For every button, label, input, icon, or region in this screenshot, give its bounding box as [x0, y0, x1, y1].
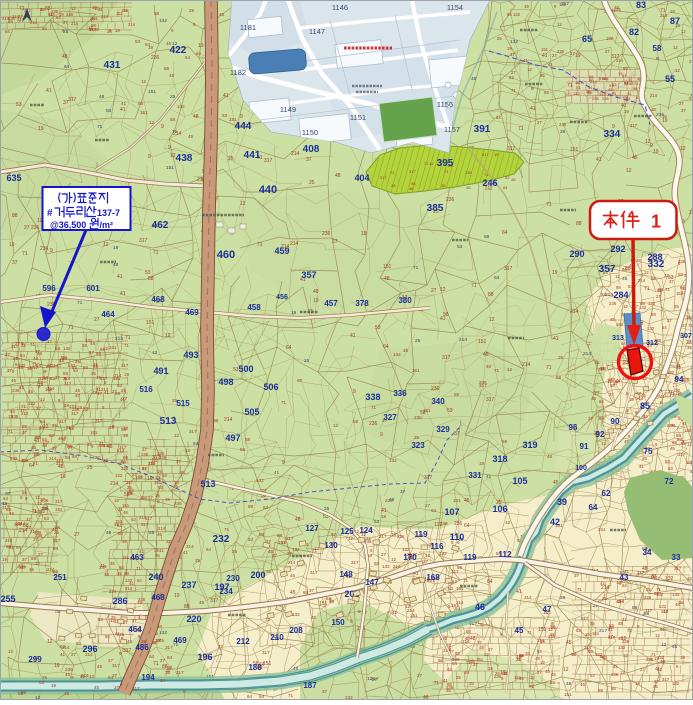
svg-text:53: 53: [509, 75, 514, 80]
svg-text:431: 431: [104, 60, 121, 71]
svg-text:58: 58: [438, 658, 443, 663]
svg-text:19: 19: [51, 683, 57, 688]
svg-text:513: 513: [160, 416, 177, 427]
svg-text:48: 48: [115, 391, 120, 396]
svg-text:48: 48: [107, 444, 113, 450]
svg-text:27: 27: [640, 667, 645, 672]
svg-text:27: 27: [552, 53, 557, 58]
svg-text:151: 151: [109, 345, 117, 350]
svg-text:88: 88: [598, 688, 604, 693]
svg-text:317: 317: [451, 569, 459, 574]
svg-text:132: 132: [513, 12, 521, 17]
svg-text:48: 48: [384, 276, 390, 282]
svg-text:25: 25: [22, 424, 27, 429]
svg-text:45: 45: [59, 358, 64, 363]
svg-text:19: 19: [621, 636, 627, 642]
svg-text:151: 151: [410, 613, 418, 618]
svg-text:317: 317: [479, 383, 487, 388]
svg-text:41: 41: [530, 106, 536, 112]
svg-text:25: 25: [117, 571, 122, 576]
svg-text:151: 151: [122, 555, 130, 560]
svg-text:41: 41: [120, 291, 126, 297]
svg-text:45: 45: [159, 638, 165, 643]
svg-text:1156: 1156: [437, 100, 453, 109]
svg-text:187: 187: [303, 681, 317, 690]
svg-text:48: 48: [64, 691, 70, 696]
svg-text:41: 41: [117, 274, 123, 280]
svg-text:357: 357: [599, 264, 616, 275]
svg-text:12: 12: [35, 495, 40, 500]
svg-text:37: 37: [510, 52, 515, 57]
svg-text:45: 45: [110, 561, 115, 566]
svg-text:53: 53: [374, 519, 380, 525]
svg-text:64: 64: [9, 545, 14, 550]
svg-text:515: 515: [176, 399, 190, 408]
svg-text:27: 27: [89, 350, 94, 355]
svg-text:214: 214: [21, 411, 29, 416]
svg-text:71: 71: [136, 566, 141, 571]
svg-text:64: 64: [142, 466, 147, 471]
svg-text:71: 71: [413, 265, 419, 271]
svg-text:45: 45: [580, 682, 586, 687]
svg-text:37: 37: [55, 375, 60, 380]
svg-text:100: 100: [575, 465, 587, 472]
svg-text:37: 37: [454, 431, 460, 437]
svg-text:422: 422: [170, 45, 187, 56]
svg-text:72: 72: [665, 477, 674, 486]
svg-text:48: 48: [409, 186, 414, 191]
svg-text:45: 45: [515, 626, 524, 635]
svg-text:378: 378: [355, 299, 369, 308]
svg-text:58: 58: [353, 419, 359, 424]
svg-text:48: 48: [9, 511, 14, 516]
svg-text:214: 214: [462, 639, 470, 644]
svg-text:9: 9: [120, 682, 123, 687]
svg-text:48: 48: [62, 54, 68, 60]
svg-text:317: 317: [611, 54, 620, 60]
svg-text:88: 88: [45, 6, 51, 12]
svg-text:214: 214: [583, 351, 591, 357]
svg-text:19: 19: [361, 231, 367, 237]
svg-text:132: 132: [647, 326, 655, 331]
svg-text:71: 71: [371, 405, 377, 410]
svg-text:53: 53: [76, 641, 82, 646]
svg-text:27: 27: [24, 225, 30, 231]
svg-text:27: 27: [537, 670, 542, 675]
svg-text:71: 71: [627, 628, 632, 633]
svg-text:53: 53: [576, 628, 581, 633]
svg-text:292: 292: [610, 244, 625, 254]
svg-text:214: 214: [459, 337, 467, 343]
svg-text:317: 317: [95, 418, 103, 423]
svg-text:27: 27: [682, 323, 687, 328]
svg-text:12: 12: [333, 423, 339, 428]
svg-text:132: 132: [256, 478, 264, 483]
svg-text:88: 88: [34, 452, 40, 458]
svg-text:214: 214: [224, 417, 233, 423]
svg-text:132: 132: [63, 346, 71, 351]
svg-text:317: 317: [176, 670, 184, 675]
svg-text:317: 317: [630, 123, 638, 128]
svg-text:19: 19: [198, 43, 204, 49]
svg-text:71: 71: [494, 368, 500, 373]
svg-text:12: 12: [8, 649, 14, 654]
svg-text:37: 37: [218, 644, 224, 649]
svg-text:25: 25: [121, 388, 126, 393]
svg-text:64: 64: [108, 675, 114, 680]
svg-text:1154: 1154: [447, 3, 463, 12]
svg-text:19: 19: [519, 676, 524, 681]
svg-text:317: 317: [379, 534, 387, 539]
svg-text:42: 42: [550, 517, 560, 527]
svg-text:41: 41: [553, 336, 559, 342]
svg-text:37: 37: [550, 624, 555, 629]
svg-text:64: 64: [196, 51, 202, 56]
svg-text:48: 48: [663, 609, 669, 614]
svg-text:48: 48: [642, 456, 647, 461]
svg-text:9: 9: [50, 248, 53, 254]
svg-text:27: 27: [622, 73, 627, 78]
svg-text:137-7: 137-7: [97, 208, 120, 218]
svg-text:19: 19: [115, 28, 120, 33]
svg-text:236: 236: [12, 388, 20, 393]
svg-text:71: 71: [68, 325, 74, 331]
svg-text:214: 214: [5, 538, 13, 543]
svg-text:64: 64: [73, 368, 78, 373]
svg-text:48: 48: [466, 185, 471, 190]
svg-text:25: 25: [441, 183, 446, 188]
svg-text:19: 19: [618, 71, 623, 76]
svg-text:53: 53: [448, 586, 454, 591]
svg-text:53: 53: [222, 113, 228, 118]
svg-text:236: 236: [609, 301, 617, 306]
svg-text:25: 25: [127, 485, 132, 490]
svg-text:45: 45: [311, 615, 317, 620]
svg-text:58: 58: [651, 276, 656, 281]
svg-text:25: 25: [497, 36, 502, 41]
svg-text:12: 12: [114, 522, 119, 527]
svg-text:41: 41: [660, 394, 665, 399]
svg-text:19: 19: [662, 118, 668, 124]
svg-text:58: 58: [653, 44, 662, 53]
svg-text:71: 71: [598, 367, 603, 372]
svg-text:357: 357: [301, 270, 316, 280]
svg-text:516: 516: [139, 385, 153, 394]
svg-text:151: 151: [91, 16, 99, 21]
svg-text:214: 214: [638, 278, 646, 283]
svg-text:236: 236: [646, 657, 654, 662]
svg-text:214: 214: [522, 362, 531, 368]
svg-text:53: 53: [447, 408, 453, 414]
svg-text:37: 37: [35, 349, 40, 354]
svg-text:1182: 1182: [230, 68, 246, 77]
svg-text:48: 48: [566, 681, 572, 687]
svg-text:25: 25: [602, 596, 607, 601]
svg-text:317: 317: [141, 522, 149, 527]
svg-text:45: 45: [566, 640, 572, 646]
svg-text:408: 408: [303, 144, 320, 155]
svg-text:41: 41: [46, 88, 52, 94]
svg-text:27: 27: [5, 352, 10, 357]
svg-text:19: 19: [138, 474, 143, 479]
svg-text:37: 37: [132, 618, 137, 623]
svg-text:71: 71: [77, 300, 83, 306]
svg-text:214: 214: [71, 21, 79, 26]
svg-text:236: 236: [151, 55, 160, 61]
svg-text:27: 27: [686, 340, 692, 346]
svg-text:64: 64: [431, 508, 437, 513]
svg-text:105: 105: [512, 476, 527, 486]
svg-text:307: 307: [680, 333, 692, 340]
svg-text:37: 37: [309, 588, 315, 593]
svg-text:53: 53: [83, 365, 88, 370]
svg-text:45: 45: [137, 600, 142, 605]
svg-text:12: 12: [673, 45, 678, 50]
svg-text:37: 37: [26, 517, 31, 522]
svg-text:71: 71: [153, 250, 159, 256]
svg-text:12: 12: [620, 670, 625, 675]
svg-text:236: 236: [141, 452, 149, 457]
svg-text:71: 71: [463, 578, 469, 583]
svg-text:64: 64: [494, 275, 500, 281]
svg-text:53: 53: [665, 459, 670, 464]
svg-text:116: 116: [431, 542, 444, 551]
svg-text:71: 71: [153, 661, 159, 667]
svg-text:214: 214: [51, 363, 59, 368]
svg-text:45: 45: [687, 576, 692, 581]
svg-text:58: 58: [42, 26, 47, 31]
svg-text:12: 12: [687, 442, 692, 447]
svg-text:88: 88: [625, 266, 631, 272]
svg-text:214: 214: [81, 673, 89, 678]
svg-text:45: 45: [94, 685, 100, 690]
svg-text:58: 58: [138, 101, 144, 106]
svg-text:19: 19: [27, 366, 32, 371]
svg-text:1150: 1150: [302, 128, 318, 137]
svg-text:71: 71: [125, 335, 131, 341]
svg-text:317: 317: [11, 344, 19, 349]
svg-text:12: 12: [162, 473, 167, 478]
svg-text:12: 12: [185, 448, 191, 453]
svg-text:64: 64: [503, 185, 508, 190]
svg-text:37: 37: [63, 100, 69, 106]
svg-text:110: 110: [450, 532, 465, 542]
svg-text:47: 47: [543, 605, 552, 614]
svg-text:41: 41: [120, 107, 126, 113]
svg-text:19: 19: [391, 532, 397, 537]
svg-text:48: 48: [295, 517, 301, 523]
svg-text:37: 37: [488, 647, 493, 652]
svg-text:88: 88: [576, 221, 582, 227]
svg-text:53: 53: [505, 175, 510, 180]
svg-text:71: 71: [434, 680, 439, 685]
svg-text:9: 9: [531, 86, 534, 92]
svg-text:96: 96: [569, 423, 578, 432]
svg-text:64: 64: [43, 375, 48, 380]
svg-text:25: 25: [414, 435, 420, 440]
svg-text:71: 71: [30, 342, 35, 347]
svg-text:19: 19: [114, 498, 119, 503]
svg-text:214: 214: [291, 151, 300, 157]
svg-text:12: 12: [601, 441, 606, 446]
svg-text:88: 88: [12, 213, 18, 219]
svg-text:25: 25: [590, 621, 595, 626]
svg-text:25: 25: [456, 675, 461, 680]
svg-text:313: 313: [612, 335, 624, 342]
svg-text:25: 25: [155, 553, 160, 558]
svg-text:236: 236: [557, 49, 565, 54]
svg-text:71: 71: [22, 251, 28, 257]
svg-text:71: 71: [471, 283, 477, 289]
svg-text:151: 151: [319, 601, 328, 607]
svg-text:317: 317: [599, 628, 607, 634]
svg-text:25: 25: [75, 359, 80, 364]
svg-text:45: 45: [622, 276, 628, 282]
svg-text:317: 317: [53, 538, 61, 543]
svg-text:64: 64: [145, 42, 151, 47]
svg-text:41: 41: [542, 53, 548, 59]
svg-text:317: 317: [152, 455, 161, 461]
svg-text:27: 27: [656, 294, 661, 299]
svg-text:236: 236: [431, 386, 440, 392]
svg-text:9: 9: [380, 432, 383, 438]
svg-text:317: 317: [59, 419, 67, 424]
svg-text:340: 340: [431, 397, 445, 406]
svg-text:88: 88: [632, 605, 638, 611]
svg-text:1157: 1157: [444, 125, 460, 134]
svg-text:58: 58: [600, 654, 605, 659]
svg-text:64: 64: [105, 634, 110, 639]
svg-text:41: 41: [100, 563, 105, 568]
svg-text:601: 601: [86, 284, 100, 293]
svg-text:317: 317: [507, 146, 516, 152]
svg-text:236: 236: [667, 423, 675, 428]
svg-text:48: 48: [169, 73, 175, 78]
svg-text:12: 12: [626, 168, 632, 174]
svg-text:45: 45: [65, 672, 71, 677]
svg-text:19: 19: [680, 655, 685, 660]
svg-text:48: 48: [193, 114, 199, 120]
svg-text:19: 19: [479, 461, 485, 466]
svg-text:148: 148: [339, 570, 353, 579]
svg-text:132: 132: [177, 104, 185, 109]
svg-text:9: 9: [183, 689, 186, 694]
svg-text:25: 25: [309, 180, 315, 186]
svg-text:491: 491: [153, 366, 168, 376]
svg-text:132: 132: [159, 630, 167, 636]
svg-text:12: 12: [425, 553, 431, 558]
svg-text:27: 27: [511, 70, 516, 75]
svg-text:323: 323: [411, 441, 425, 450]
svg-text:53: 53: [544, 90, 549, 95]
svg-text:19: 19: [9, 242, 15, 248]
svg-text:37: 37: [331, 532, 337, 537]
svg-text:236: 236: [66, 12, 74, 17]
svg-text:317: 317: [119, 445, 127, 450]
svg-text:53: 53: [135, 39, 141, 44]
svg-text:19: 19: [59, 12, 64, 17]
svg-text:48: 48: [106, 530, 112, 536]
svg-text:64: 64: [507, 12, 512, 17]
svg-text:45: 45: [483, 352, 489, 358]
svg-text:317: 317: [189, 429, 197, 434]
svg-text:27: 27: [423, 559, 429, 564]
svg-text:214: 214: [290, 241, 299, 247]
svg-text:214: 214: [570, 309, 579, 315]
svg-text:151: 151: [140, 110, 148, 115]
svg-text:459: 459: [274, 246, 289, 256]
svg-text:236: 236: [454, 521, 463, 527]
svg-text:236: 236: [397, 534, 405, 539]
svg-text:132: 132: [686, 460, 693, 465]
svg-text:19: 19: [123, 433, 128, 438]
svg-text:112: 112: [499, 550, 512, 559]
svg-text:151: 151: [453, 498, 461, 503]
svg-text:41: 41: [223, 93, 229, 99]
svg-text:236: 236: [414, 415, 422, 420]
svg-text:214: 214: [125, 586, 133, 591]
svg-text:64: 64: [383, 344, 389, 350]
svg-text:25: 25: [82, 343, 87, 348]
svg-text:75: 75: [644, 447, 653, 456]
svg-text:9: 9: [148, 154, 151, 160]
svg-text:486: 486: [135, 643, 149, 652]
svg-text:48: 48: [104, 572, 109, 577]
svg-text:71: 71: [19, 6, 25, 12]
svg-text:132: 132: [606, 36, 614, 41]
svg-text:37: 37: [608, 634, 613, 639]
svg-text:19: 19: [123, 8, 128, 13]
svg-text:25: 25: [232, 549, 238, 554]
svg-text:385: 385: [427, 203, 444, 214]
svg-text:25: 25: [149, 530, 155, 536]
svg-text:214: 214: [393, 564, 401, 569]
svg-text:469: 469: [185, 308, 199, 317]
svg-text:1146: 1146: [332, 3, 348, 12]
svg-text:12: 12: [47, 639, 53, 645]
svg-text:58: 58: [374, 561, 380, 566]
svg-text:25: 25: [616, 7, 621, 12]
svg-text:12: 12: [40, 397, 45, 402]
svg-text:58: 58: [55, 346, 60, 351]
svg-text:246: 246: [482, 178, 497, 188]
svg-text:9: 9: [168, 145, 171, 151]
svg-text:64: 64: [662, 325, 667, 330]
svg-text:58: 58: [443, 312, 449, 318]
svg-text:286: 286: [112, 596, 127, 606]
svg-text:41: 41: [655, 666, 660, 671]
svg-text:19: 19: [124, 372, 129, 377]
svg-text:493: 493: [183, 350, 198, 360]
svg-text:9: 9: [157, 499, 160, 504]
svg-text:317: 317: [504, 266, 513, 272]
svg-text:9: 9: [282, 460, 285, 466]
svg-text:132: 132: [618, 645, 626, 650]
svg-text:317: 317: [561, 1, 569, 7]
svg-text:456: 456: [276, 294, 288, 301]
svg-text:64: 64: [452, 661, 458, 666]
svg-text:53: 53: [117, 383, 122, 388]
svg-text:331: 331: [468, 471, 482, 480]
svg-text:45: 45: [551, 672, 556, 677]
svg-text:317: 317: [68, 97, 77, 103]
svg-text:462: 462: [152, 220, 169, 231]
svg-text:12: 12: [489, 317, 495, 323]
svg-text:236: 236: [385, 498, 393, 503]
svg-text:88: 88: [248, 504, 254, 509]
svg-text:25: 25: [63, 29, 69, 35]
svg-text:45: 45: [464, 498, 470, 504]
